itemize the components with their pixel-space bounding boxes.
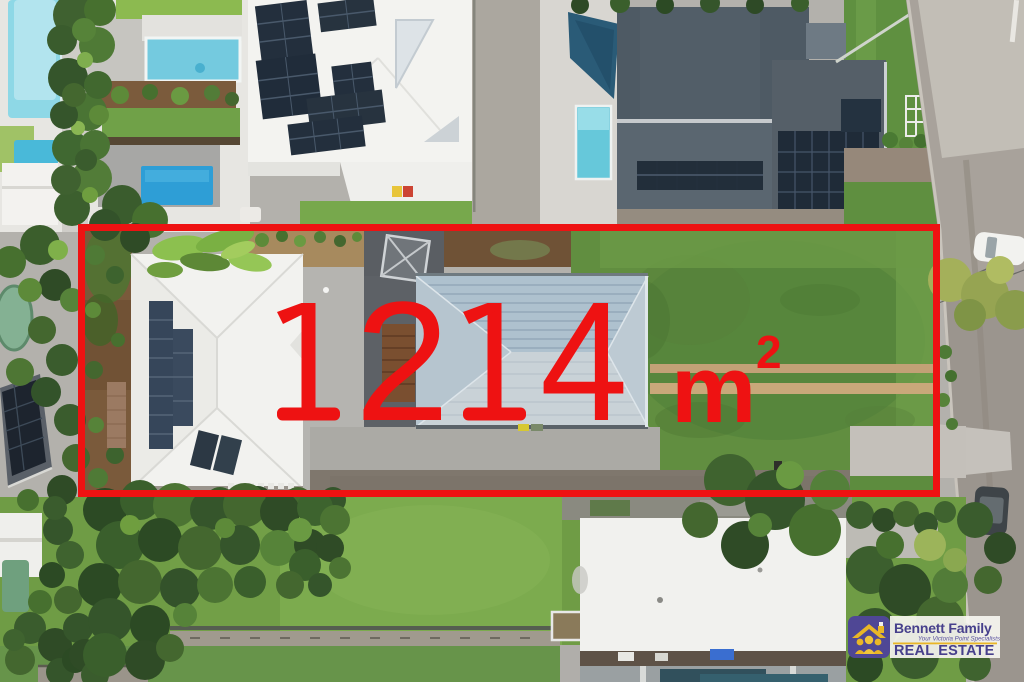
svg-text:2: 2 xyxy=(355,267,450,457)
svg-text:4: 4 xyxy=(540,266,628,457)
svg-text:m: m xyxy=(671,336,756,443)
svg-text:REAL ESTATE: REAL ESTATE xyxy=(894,643,995,659)
svg-text:Bennett Family: Bennett Family xyxy=(894,620,992,636)
svg-text:2: 2 xyxy=(756,326,782,378)
svg-text:Your Victoria Point Specialist: Your Victoria Point Specialists xyxy=(918,636,1000,643)
